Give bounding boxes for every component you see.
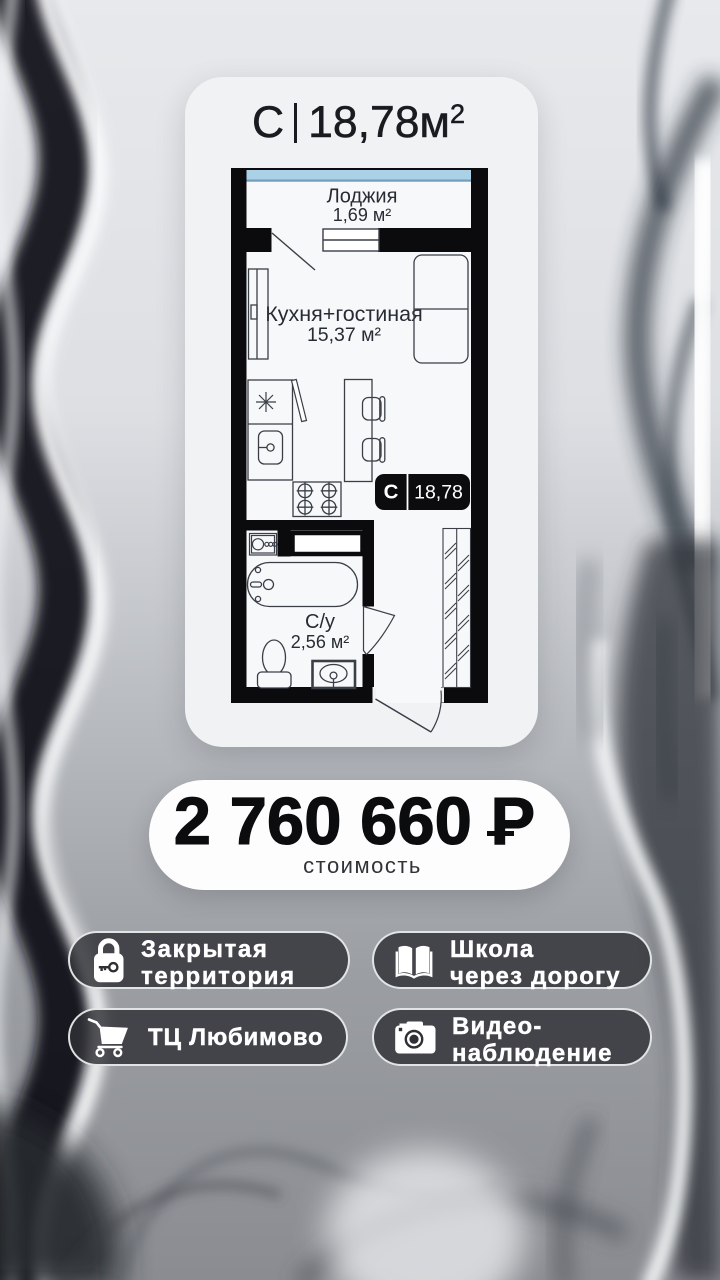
svg-text:Кухня+гостиная: Кухня+гостиная [265,302,423,326]
svg-text:С/у: С/у [305,611,335,633]
svg-text:1,69 м²: 1,69 м² [333,205,391,225]
svg-text:2,56 м²: 2,56 м² [291,632,349,652]
svg-text:С: С [384,481,399,504]
svg-text:18,78: 18,78 [414,482,463,504]
svg-text:15,37 м²: 15,37 м² [307,324,382,346]
